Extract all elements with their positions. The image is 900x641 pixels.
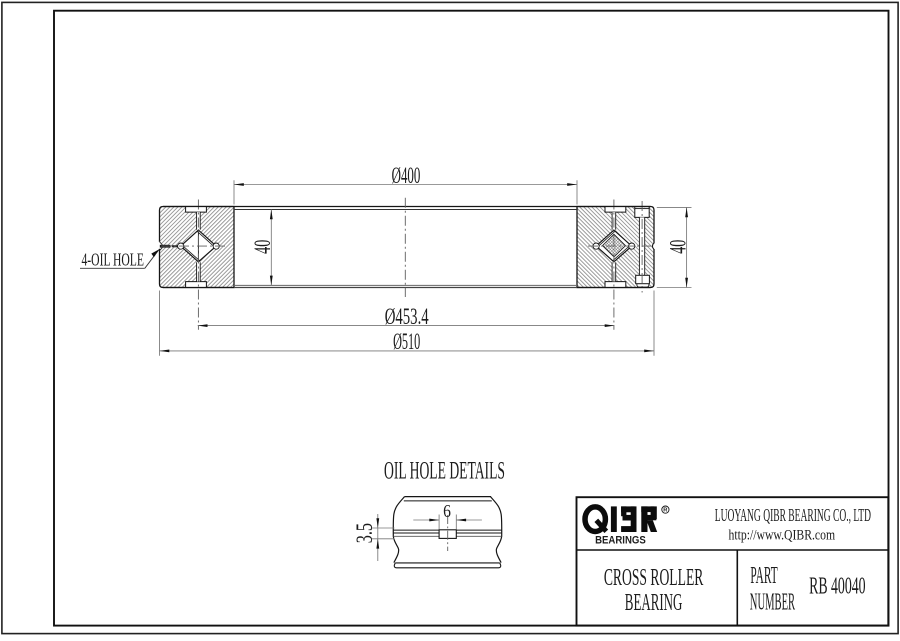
svg-text:6: 6 [443, 501, 451, 521]
svg-text:http://www.QIBR.com: http://www.QIBR.com [729, 526, 836, 543]
svg-text:OIL HOLE DETAILS: OIL HOLE DETAILS [384, 457, 505, 484]
svg-text:BEARING: BEARING [625, 590, 683, 616]
svg-text:Ø400: Ø400 [392, 163, 421, 189]
svg-text:NUMBER: NUMBER [750, 589, 795, 615]
svg-text:LUOYANG QIBR BEARING CO., LTD: LUOYANG QIBR BEARING CO., LTD [715, 505, 871, 525]
svg-text:40: 40 [250, 240, 276, 254]
svg-text:PART: PART [750, 563, 777, 589]
svg-text:CROSS ROLLER: CROSS ROLLER [604, 565, 704, 591]
svg-text:Ø510: Ø510 [393, 329, 420, 355]
svg-text:Ø453.4: Ø453.4 [385, 304, 429, 330]
svg-text:RB 40040: RB 40040 [809, 574, 866, 600]
svg-text:40: 40 [666, 240, 692, 254]
svg-text:BEARINGS: BEARINGS [595, 535, 646, 547]
svg-text:4-OIL HOLE: 4-OIL HOLE [82, 250, 145, 270]
svg-text:3.5: 3.5 [352, 523, 378, 543]
